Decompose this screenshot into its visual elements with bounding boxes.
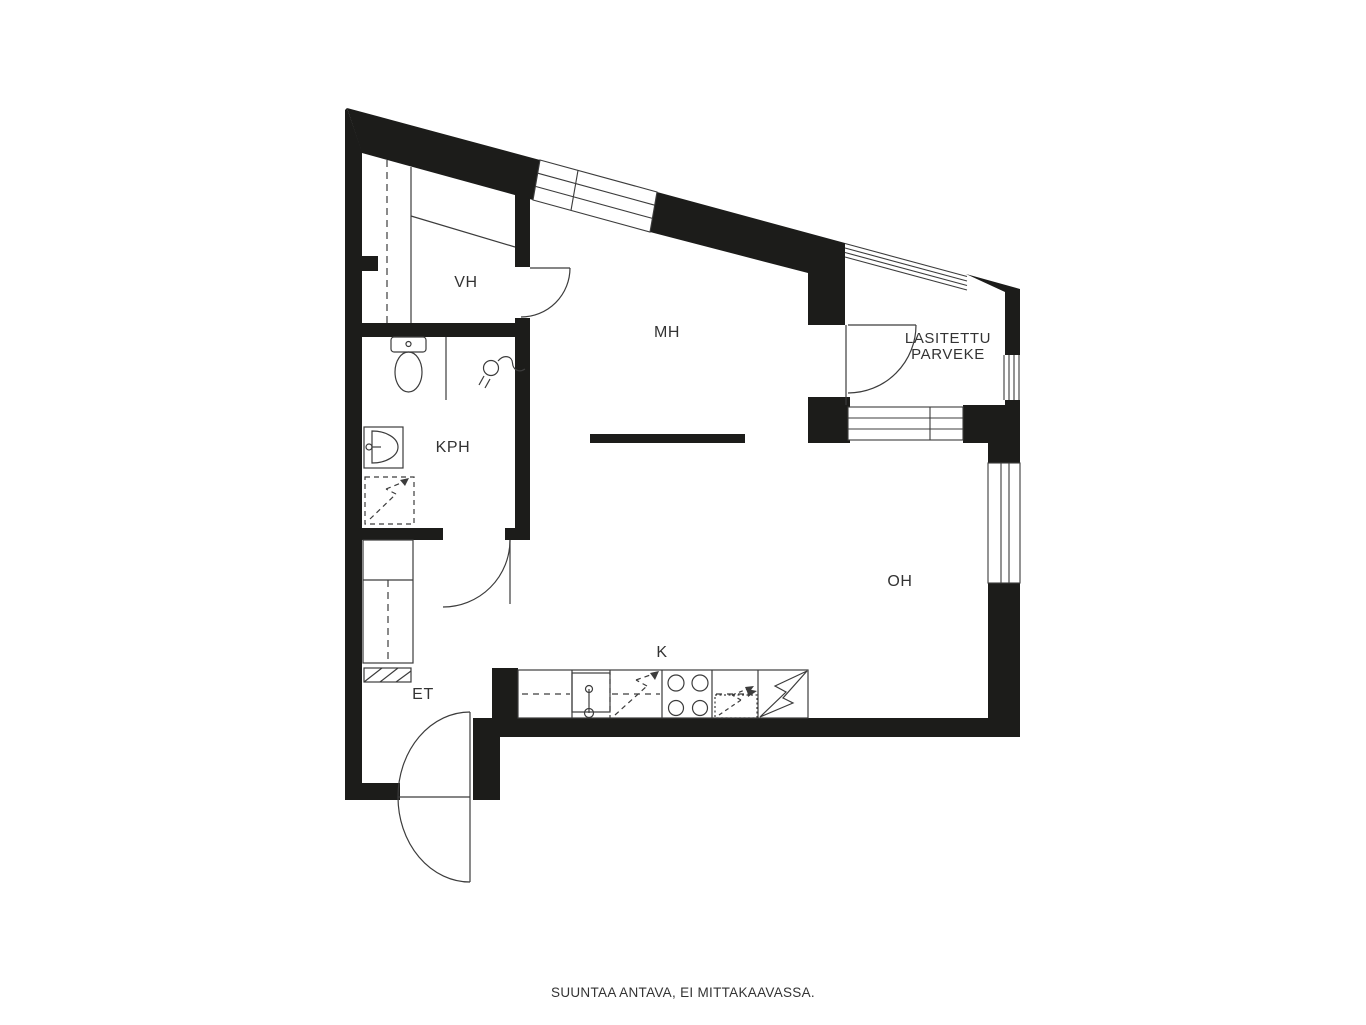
wall-et-bottom [345, 783, 400, 800]
wall-entry-jamb [473, 737, 500, 800]
dishwasher-reservation-symbol [615, 671, 659, 715]
door-entry [398, 712, 470, 882]
wall-kitchen-stub [492, 668, 518, 718]
et-closet [363, 540, 413, 663]
wall-balcony-door-jamb [808, 397, 850, 443]
caption-disclaimer: SUUNTAA ANTAVA, EI MITTAKAAVASSA. [551, 985, 815, 1000]
wall-vh-right-upper [515, 194, 530, 267]
label-oh: OH [887, 573, 912, 590]
kitchen-sink-icon [572, 673, 610, 718]
wall-top-sloped-b [650, 192, 845, 325]
floor-plan-page: VH MH KPH ET K OH LASITETTU PARVEKE SUUN… [0, 0, 1366, 1025]
balcony-window-sill [848, 407, 963, 440]
et-shoe-rack [364, 668, 411, 682]
wall-vh-bottom [362, 323, 530, 337]
washing-machine-reservation-symbol [365, 477, 414, 524]
windows [533, 160, 1020, 583]
wall-room-divider [590, 434, 745, 443]
wall-left-stub [362, 256, 378, 271]
wall-balcony-bottom-corner [963, 400, 1020, 463]
label-kph: KPH [436, 439, 471, 456]
label-mh: MH [654, 324, 680, 341]
label-balcony-line2: PARVEKE [911, 346, 985, 363]
wall-kph-bottom [362, 528, 443, 540]
balcony-glazing-right [1004, 355, 1019, 400]
toilet-icon [391, 337, 426, 392]
stove-burners-icon [668, 675, 708, 716]
wall-bottom [473, 718, 1020, 737]
washbasin-icon [364, 427, 403, 468]
room-labels: VH MH KPH ET K OH LASITETTU PARVEKE SUUN… [412, 274, 991, 1000]
wall-right-lower [988, 583, 1020, 737]
wall-top-sloped-a [347, 108, 540, 200]
window-oh-right [988, 463, 1020, 583]
label-balcony-line1: LASITETTU [905, 330, 991, 347]
appliance-reservation-symbol [715, 686, 757, 718]
wall-left [345, 108, 362, 800]
kitchen-counter [518, 670, 808, 718]
label-k: K [656, 644, 667, 661]
wall-kph-door-jamb [505, 528, 530, 540]
window-mh-sloped [533, 160, 657, 232]
label-vh: VH [454, 274, 477, 291]
balcony-glazing-top [845, 244, 967, 291]
wall-kph-right [515, 337, 530, 528]
fridge-lightning-symbol [760, 671, 807, 717]
door-vh [521, 268, 570, 317]
floor-plan-canvas: VH MH KPH ET K OH LASITETTU PARVEKE SUUN… [0, 0, 1366, 1025]
door-kph [443, 540, 510, 607]
label-et: ET [412, 686, 434, 703]
